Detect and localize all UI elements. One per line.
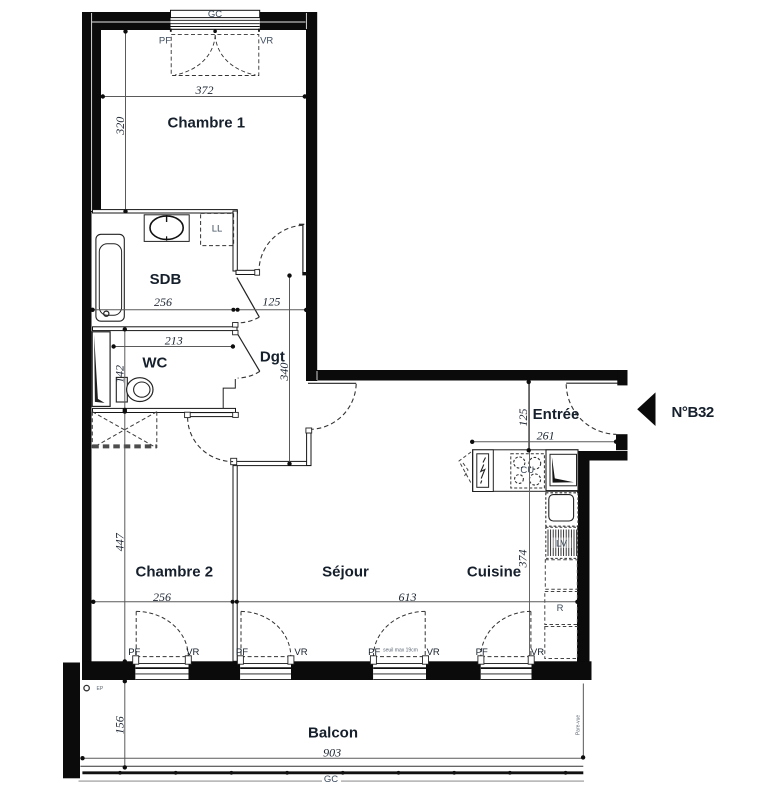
- svg-text:156: 156: [112, 716, 126, 734]
- svg-text:LL: LL: [212, 224, 223, 235]
- svg-text:LV: LV: [556, 539, 568, 550]
- svg-text:142: 142: [112, 365, 126, 383]
- svg-text:261: 261: [537, 428, 555, 442]
- svg-text:Chambre 2: Chambre 2: [136, 564, 214, 581]
- svg-text:125: 125: [262, 294, 280, 308]
- svg-text:213: 213: [165, 333, 183, 347]
- svg-text:CU: CU: [520, 465, 534, 476]
- svg-text:SDB: SDB: [150, 271, 182, 288]
- svg-text:903: 903: [323, 745, 341, 759]
- svg-text:Cuisine: Cuisine: [467, 564, 521, 581]
- svg-text:Balcon: Balcon: [308, 725, 358, 742]
- svg-text:Séjour: Séjour: [322, 564, 369, 581]
- svg-text:PF: PF: [476, 647, 488, 658]
- svg-text:Entrée: Entrée: [533, 406, 580, 423]
- svg-text:EP: EP: [97, 686, 104, 692]
- svg-text:PF: PF: [236, 647, 248, 658]
- svg-text:R: R: [557, 603, 564, 614]
- svg-text:Dgt: Dgt: [260, 349, 285, 366]
- svg-text:VR: VR: [427, 647, 440, 658]
- svg-text:125: 125: [516, 409, 530, 427]
- svg-text:613: 613: [399, 590, 417, 604]
- svg-text:VR: VR: [260, 36, 273, 47]
- svg-text:PF: PF: [368, 647, 380, 658]
- svg-text:447: 447: [112, 532, 126, 551]
- svg-text:GC: GC: [324, 774, 338, 785]
- svg-text:Pare-vue: Pare-vue: [576, 715, 582, 736]
- svg-text:VR: VR: [186, 647, 199, 658]
- svg-text:372: 372: [195, 83, 214, 97]
- svg-text:N°B32: N°B32: [672, 404, 714, 421]
- svg-text:WC: WC: [142, 355, 167, 372]
- svg-text:VR: VR: [294, 647, 307, 658]
- svg-text:VR: VR: [531, 647, 544, 658]
- svg-text:256: 256: [154, 295, 172, 309]
- svg-text:GC: GC: [208, 9, 222, 20]
- svg-text:Chambre 1: Chambre 1: [168, 115, 246, 132]
- svg-text:seuil max 19cm: seuil max 19cm: [383, 648, 418, 654]
- svg-text:PF: PF: [159, 36, 171, 47]
- svg-text:256: 256: [153, 590, 171, 604]
- svg-text:PF: PF: [128, 647, 140, 658]
- svg-text:320: 320: [113, 117, 127, 136]
